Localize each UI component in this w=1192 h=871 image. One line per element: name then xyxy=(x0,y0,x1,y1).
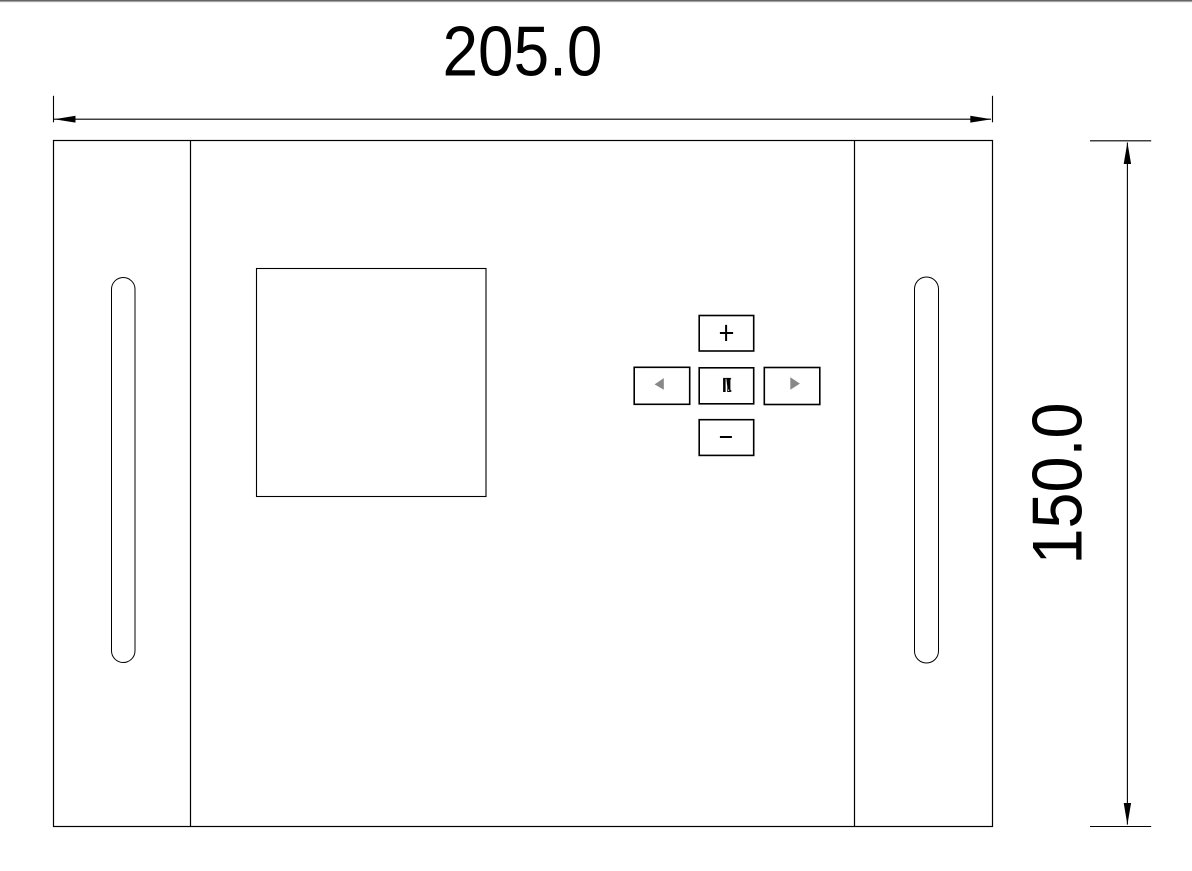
svg-text:150.0: 150.0 xyxy=(1018,403,1097,565)
svg-text:205.0: 205.0 xyxy=(443,12,603,91)
